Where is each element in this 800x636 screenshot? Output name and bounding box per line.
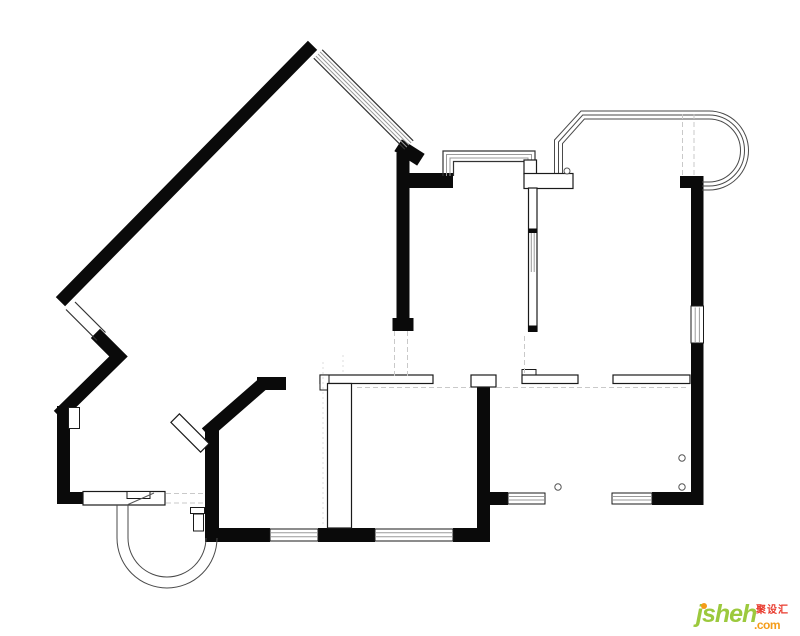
- logo-j-dot-icon: [701, 603, 707, 609]
- bay-window: [555, 111, 749, 190]
- logo-domain-text: .com: [754, 618, 780, 632]
- interior-door-leaf: [171, 414, 209, 452]
- door-knobs: [555, 168, 685, 490]
- dashed-guides: [166, 331, 688, 527]
- logo: jsheh 聚设汇 .com: [694, 598, 798, 634]
- entry-door: [83, 492, 205, 532]
- logo-cjk-label: 聚设汇: [756, 601, 789, 616]
- exterior-walls: [57, 50, 704, 542]
- floor-plan: [0, 0, 800, 636]
- window-diagonal-top: [314, 50, 413, 149]
- floor-plan-page: jsheh 聚设汇 .com: [0, 0, 800, 636]
- window-band-top-middle: [443, 151, 535, 176]
- thin-partitions: [69, 160, 691, 528]
